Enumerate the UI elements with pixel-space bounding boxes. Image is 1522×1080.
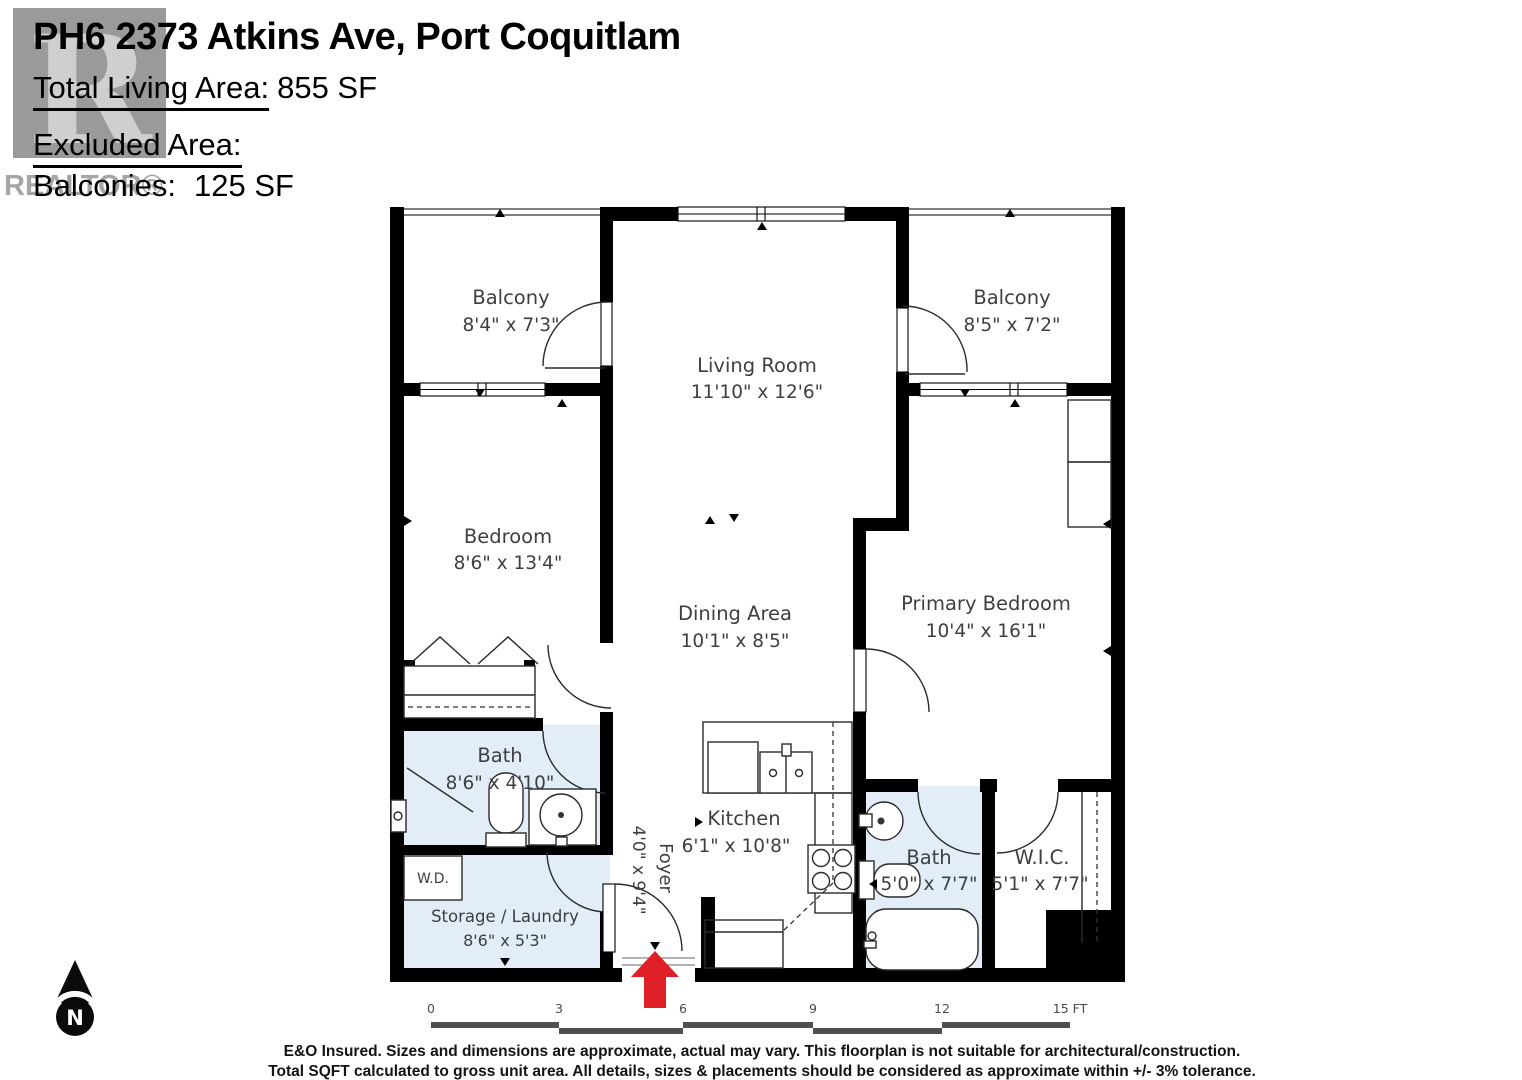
excluded-area-line: Excluded Area: bbox=[33, 127, 242, 163]
storage-laundry-dims: 8'6" x 5'3" bbox=[463, 931, 547, 950]
disclaimer: E&O Insured. Sizes and dimensions are ap… bbox=[268, 1043, 1256, 1080]
dining-area-dims: 10'1" x 8'5" bbox=[681, 631, 790, 652]
bath-main-label: Bath bbox=[477, 744, 522, 767]
bathtub-icon bbox=[864, 909, 978, 970]
total-living-area-label: Total Living Area: bbox=[33, 70, 269, 111]
north-compass-icon: N bbox=[54, 960, 96, 1036]
foyer-dims: 4'0" x 9'4" bbox=[628, 825, 648, 914]
disclaimer-line1: E&O Insured. Sizes and dimensions are ap… bbox=[284, 1043, 1241, 1060]
entry-arrow-icon bbox=[631, 951, 679, 1008]
balcony-right-dims: 8'5" x 7'2" bbox=[964, 315, 1061, 336]
balcony-right-door bbox=[897, 306, 967, 374]
scale-tick-15: 15 FT bbox=[1053, 1001, 1088, 1016]
living-room-window bbox=[678, 207, 845, 221]
kitchen-dims: 6'1" x 10'8" bbox=[682, 836, 791, 857]
bedroom-door bbox=[548, 645, 611, 708]
bedroom-dims: 8'6" x 13'4" bbox=[454, 553, 563, 574]
scale-tick-6: 6 bbox=[679, 1001, 687, 1016]
bedroom-label: Bedroom bbox=[464, 525, 552, 548]
disclaimer-line2: Total SQFT calculated to gross unit area… bbox=[268, 1063, 1256, 1080]
wic-label: W.I.C. bbox=[1014, 846, 1069, 869]
wic-dims: 5'1" x 7'7" bbox=[992, 874, 1089, 895]
wic-door bbox=[997, 792, 1058, 853]
bath-ensuite-label: Bath bbox=[906, 846, 951, 869]
wd-label: W.D. bbox=[417, 871, 449, 887]
sink-icon bbox=[529, 789, 596, 846]
kitchen-island bbox=[705, 920, 783, 968]
kitchen-sink-icon bbox=[760, 744, 812, 793]
primary-bedroom-door bbox=[854, 649, 929, 712]
bath-ensuite-dims: 5'0" x 7'7" bbox=[881, 874, 978, 895]
balcony-left-label: Balcony bbox=[472, 286, 549, 309]
foyer-label: Foyer bbox=[655, 843, 676, 893]
scale-bar: 0 3 6 9 12 15 FT bbox=[427, 1001, 1088, 1034]
bath-main-dims: 8'6" x 4'10" bbox=[446, 773, 555, 794]
kitchen-label: Kitchen bbox=[707, 807, 780, 830]
balcony-left-dims: 8'4" x 7'3" bbox=[463, 315, 560, 336]
scale-tick-9: 9 bbox=[809, 1001, 817, 1016]
page-title: PH6 2373 Atkins Ave, Port Coquitlam bbox=[33, 16, 681, 59]
excluded-area-label: Excluded Area: bbox=[33, 127, 242, 168]
shower-valve bbox=[391, 800, 406, 832]
dining-area-label: Dining Area bbox=[678, 602, 792, 625]
total-living-area-value: 855 SF bbox=[277, 70, 377, 105]
living-room-label: Living Room bbox=[697, 354, 817, 377]
fridge-icon bbox=[708, 742, 758, 793]
total-living-area-line: Total Living Area:855 SF bbox=[33, 70, 377, 106]
primary-bedroom-label: Primary Bedroom bbox=[901, 592, 1071, 615]
balconies-line: Balconies:125 SF bbox=[33, 168, 294, 204]
balconies-value: 125 SF bbox=[194, 168, 294, 203]
storage-laundry-label: Storage / Laundry bbox=[431, 907, 579, 926]
stove-icon bbox=[808, 845, 855, 893]
primary-closet bbox=[1068, 400, 1111, 527]
scale-tick-12: 12 bbox=[934, 1001, 950, 1016]
living-room-dims: 11'10" x 12'6" bbox=[691, 382, 823, 403]
primary-bedroom-window bbox=[920, 383, 1067, 396]
compass-north-label: N bbox=[66, 1006, 84, 1030]
primary-bedroom-dims: 10'4" x 16'1" bbox=[926, 621, 1047, 642]
balcony-right-label: Balcony bbox=[973, 286, 1050, 309]
balconies-label: Balconies: bbox=[33, 168, 176, 203]
scale-tick-0: 0 bbox=[427, 1001, 435, 1016]
scale-tick-3: 3 bbox=[555, 1001, 563, 1016]
entry-door bbox=[603, 884, 695, 965]
bedroom-closet bbox=[404, 637, 538, 718]
